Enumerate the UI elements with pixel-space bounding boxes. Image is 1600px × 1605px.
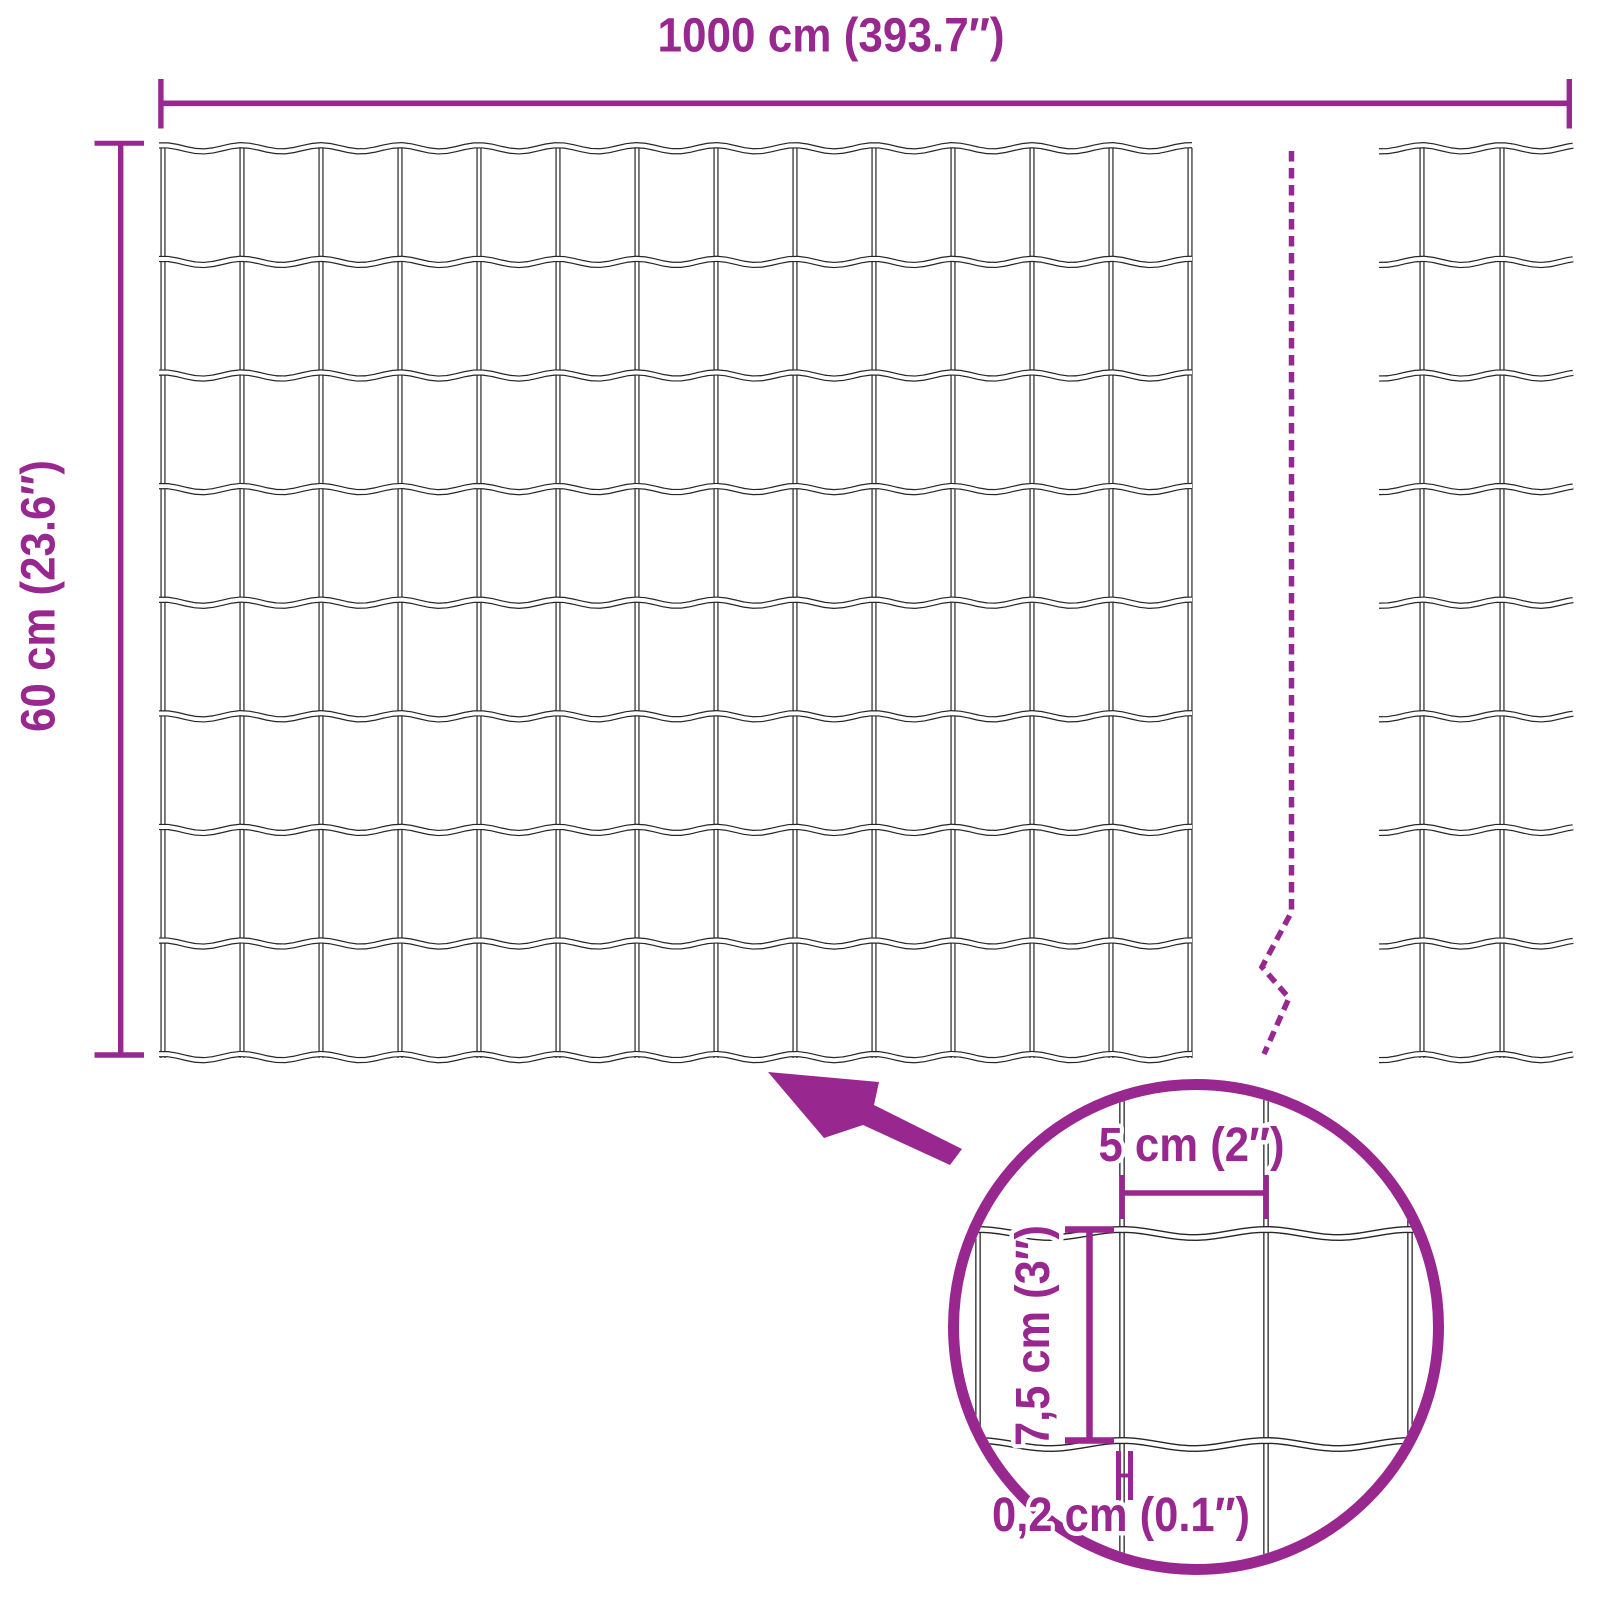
svg-text:0,2 cm (0.1″): 0,2 cm (0.1″) [992,1489,1250,1542]
svg-text:5 cm (2″): 5 cm (2″) [1099,1119,1285,1172]
svg-text:60 cm (23.6″): 60 cm (23.6″) [13,460,66,732]
svg-text:1000 cm (393.7″): 1000 cm (393.7″) [658,10,1005,63]
svg-text:7,5 cm (3″): 7,5 cm (3″) [1007,1225,1060,1446]
